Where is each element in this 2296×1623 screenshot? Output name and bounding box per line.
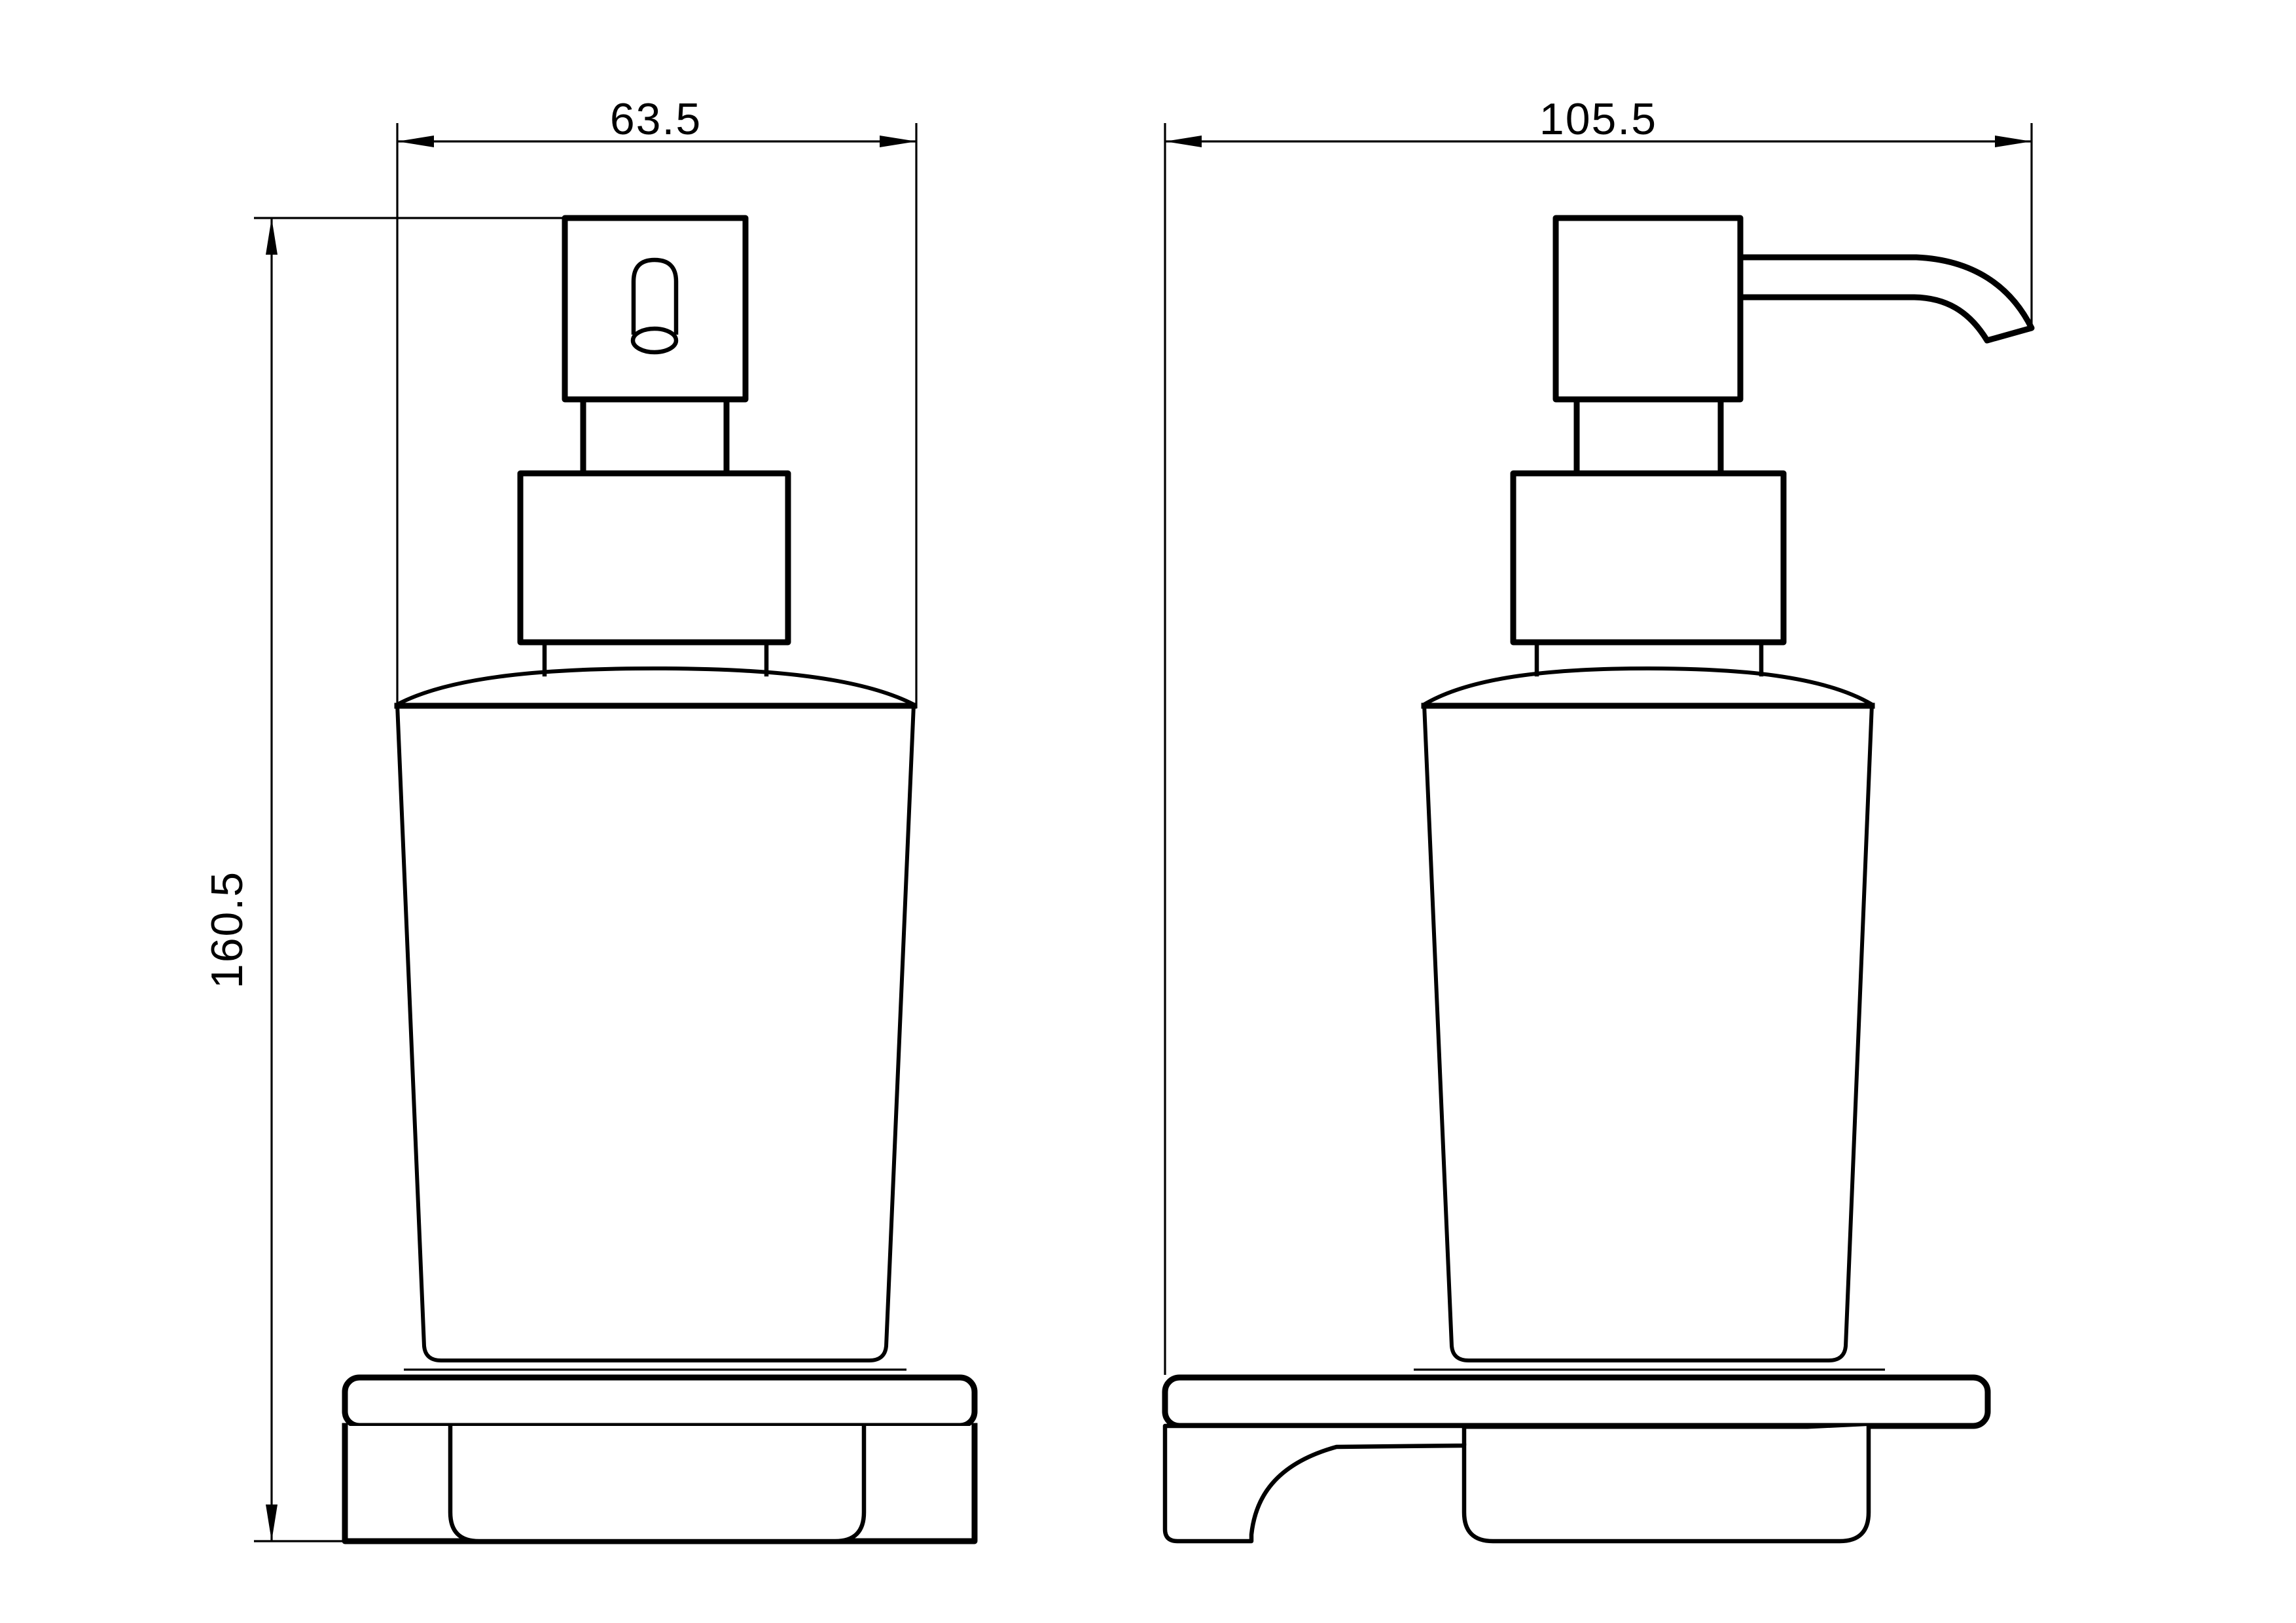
front-pump-neck	[583, 399, 726, 473]
drawing-sheet: 63.5 160.5	[0, 0, 2296, 1623]
front-glass-cup-bottom	[450, 1426, 864, 1541]
side-bottle-outline	[1424, 668, 1872, 1360]
side-view: 105.5	[1165, 94, 2032, 1541]
front-bottle-outline	[397, 668, 914, 1360]
front-bottle	[397, 668, 914, 1360]
front-holder	[345, 1370, 975, 1541]
front-pump-collar	[520, 473, 788, 642]
front-height-arrow-top	[266, 218, 278, 255]
side-pump-collar	[1513, 473, 1784, 642]
side-bottle	[1424, 668, 1872, 1360]
front-pump	[520, 218, 788, 674]
side-pump-neck	[1577, 399, 1721, 473]
front-width-label: 63.5	[610, 94, 702, 144]
side-holder-ring	[1165, 1377, 1988, 1426]
soap-dispenser-technical-drawing: 63.5 160.5	[0, 0, 2296, 1623]
side-depth-label: 105.5	[1539, 94, 1657, 144]
front-height-arrow-bottom	[266, 1504, 278, 1541]
side-bracket-arm	[1165, 1426, 1464, 1541]
side-depth-arrow-left	[1165, 136, 1202, 147]
side-glass-cup-bottom	[1464, 1426, 1869, 1541]
front-view: 63.5 160.5	[202, 94, 975, 1541]
side-spout	[1740, 257, 2032, 340]
front-width-arrow-right	[880, 136, 916, 147]
side-pump-head	[1556, 218, 1740, 399]
side-holder	[1165, 1370, 1988, 1541]
side-depth-arrow-right	[1995, 136, 2032, 147]
front-height-label: 160.5	[202, 871, 252, 989]
side-pump	[1513, 218, 2032, 674]
front-pump-head	[565, 218, 745, 399]
front-width-arrow-left	[397, 136, 434, 147]
front-holder-ring	[345, 1377, 975, 1426]
